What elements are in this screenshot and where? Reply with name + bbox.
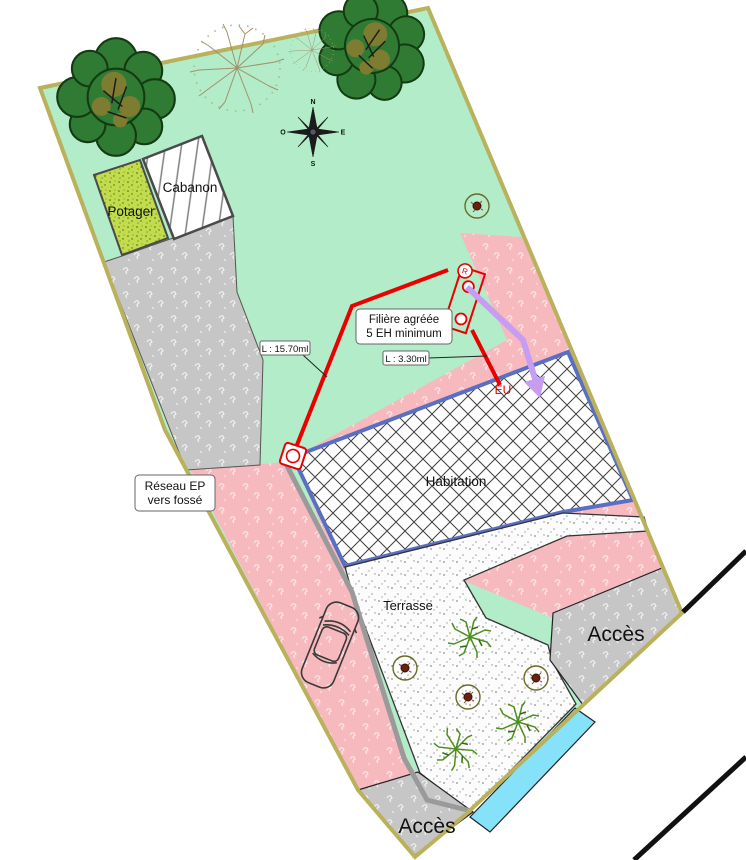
- compass-north-label: N: [310, 99, 315, 106]
- length-main-label: L : 15.70ml: [262, 344, 309, 355]
- filiere-line1: Filière agréée: [369, 314, 439, 326]
- terrasse-label: Terrasse: [383, 598, 433, 613]
- reseau-line1: Réseau EP: [145, 479, 206, 493]
- compass-west-label: O: [280, 130, 286, 137]
- reseau-callout: Réseau EP vers fossé: [135, 475, 215, 511]
- filiere-line2: 5 EH minimum: [366, 328, 441, 340]
- potager-label: Potager: [107, 204, 155, 219]
- access-south-label: Accès: [398, 815, 455, 838]
- length-main-callout: L : 15.70ml: [260, 341, 310, 355]
- compass-south-label: S: [311, 161, 316, 168]
- eu-label: EU: [495, 383, 512, 397]
- site-plan: R EU N E S O Potager Cabanon Habitation …: [0, 0, 746, 860]
- cabanon-label: Cabanon: [163, 180, 218, 195]
- site-plan-drawing: R EU N E S O Potager Cabanon Habitation …: [0, 0, 746, 860]
- access-east-label: Accès: [587, 623, 644, 646]
- length-branch-label: L : 3.30ml: [385, 354, 426, 365]
- reseau-line2: vers fossé: [148, 493, 203, 507]
- compass-east-label: E: [341, 130, 346, 137]
- filiere-callout: Filière agréée 5 EH minimum: [356, 309, 452, 344]
- length-branch-callout: L : 3.30ml: [383, 351, 429, 365]
- habitation-label: Habitation: [426, 474, 487, 489]
